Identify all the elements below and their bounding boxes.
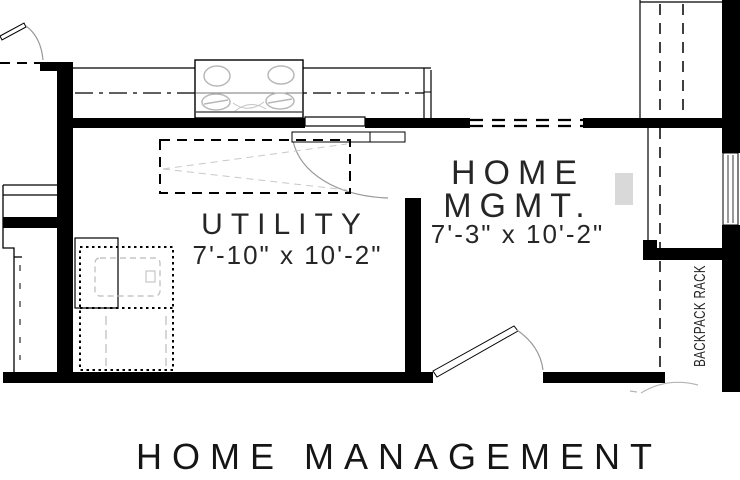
- wall-bottom-seg1: [3, 372, 433, 383]
- window-icon: [723, 153, 738, 225]
- plan-title-text: HOME MANAGEMENT: [134, 436, 664, 480]
- wall-bottom-seg2: [543, 372, 665, 383]
- upper-cabinet-dashed: [160, 140, 350, 193]
- room-dims-home-mgmt: 7'-3" x 10'-2": [405, 219, 630, 250]
- wall-closet-stub: [643, 240, 657, 260]
- wall-kitchen-seg2: [365, 118, 470, 128]
- left-room-counter: [3, 185, 57, 372]
- plan-title: HOME MANAGEMENT: [57, 436, 740, 480]
- door-swing-bottom-right: [630, 382, 698, 393]
- cooktop-icon: [195, 60, 303, 118]
- floor-plan: UTILITY 7'-10" x 10'-2" HOME MGMT. 7'-3"…: [0, 0, 740, 480]
- door-swing-bottom: [433, 326, 543, 377]
- backpack-rack-label: BACKPACK RACK: [692, 265, 710, 367]
- door-swing-top-left: [0, 23, 43, 63]
- wall-left-vertical: [57, 62, 73, 375]
- wall-kitchen-seg1: [72, 118, 305, 128]
- wall-left-room-bar: [3, 217, 57, 228]
- room-label-home-mgmt: HOME MGMT.: [418, 157, 618, 223]
- room-dims-utility: 7'-10" x 10'-2": [155, 240, 420, 271]
- wall-right-bottom: [722, 225, 740, 392]
- wall-right-top: [722, 0, 740, 153]
- room-label-home-mgmt-line1: HOME: [418, 157, 618, 190]
- wall-opening-dashed: [470, 120, 583, 126]
- wall-kitchen-seg3: [583, 118, 740, 128]
- room-label-utility: UTILITY: [160, 208, 410, 242]
